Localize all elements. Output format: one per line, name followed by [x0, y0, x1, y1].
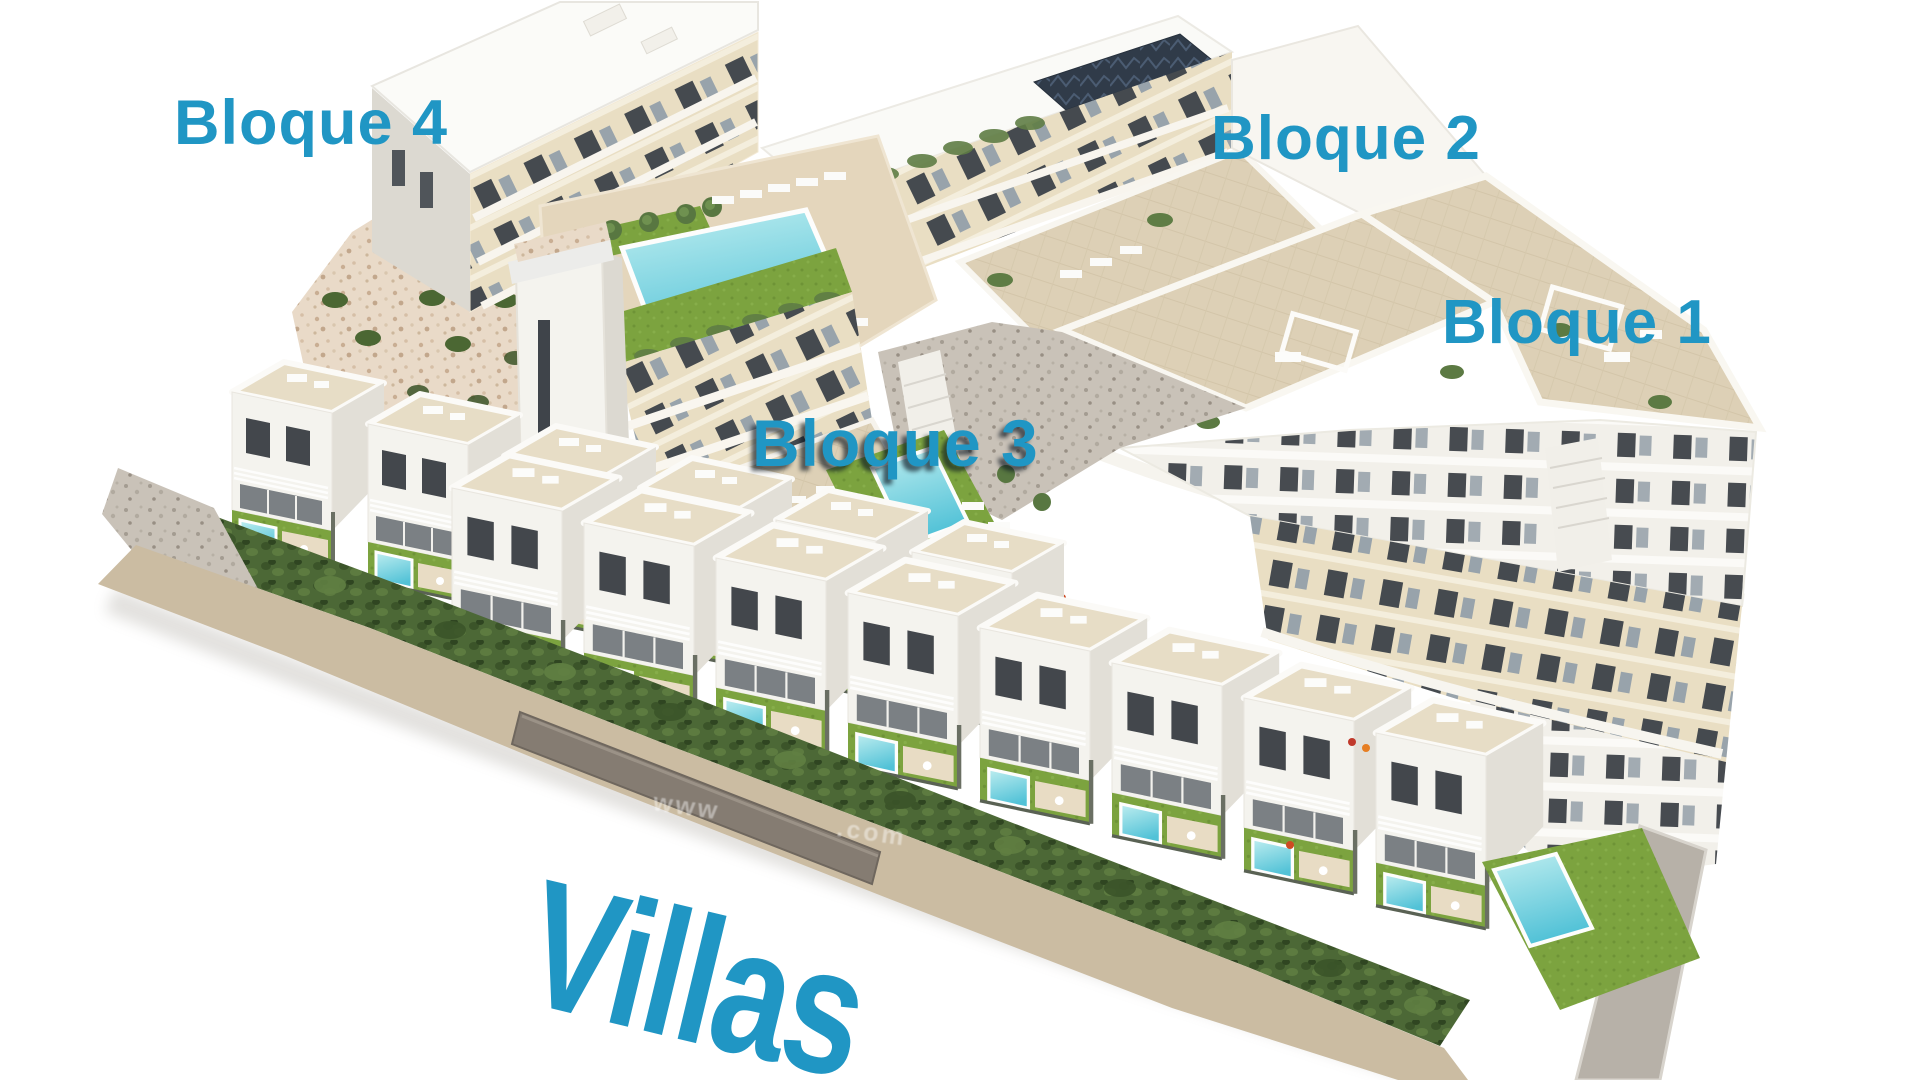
label-bloque-2: Bloque 2 [1211, 108, 1481, 170]
label-bloque-3: Bloque 3 [752, 410, 1039, 476]
development-render [0, 0, 1920, 1080]
render-canvas: Bloque 4 Bloque 2 Bloque 1 Bloque 3 Vill… [0, 0, 1920, 1080]
label-bloque-1: Bloque 1 [1442, 292, 1712, 354]
label-bloque-4: Bloque 4 [174, 92, 448, 155]
